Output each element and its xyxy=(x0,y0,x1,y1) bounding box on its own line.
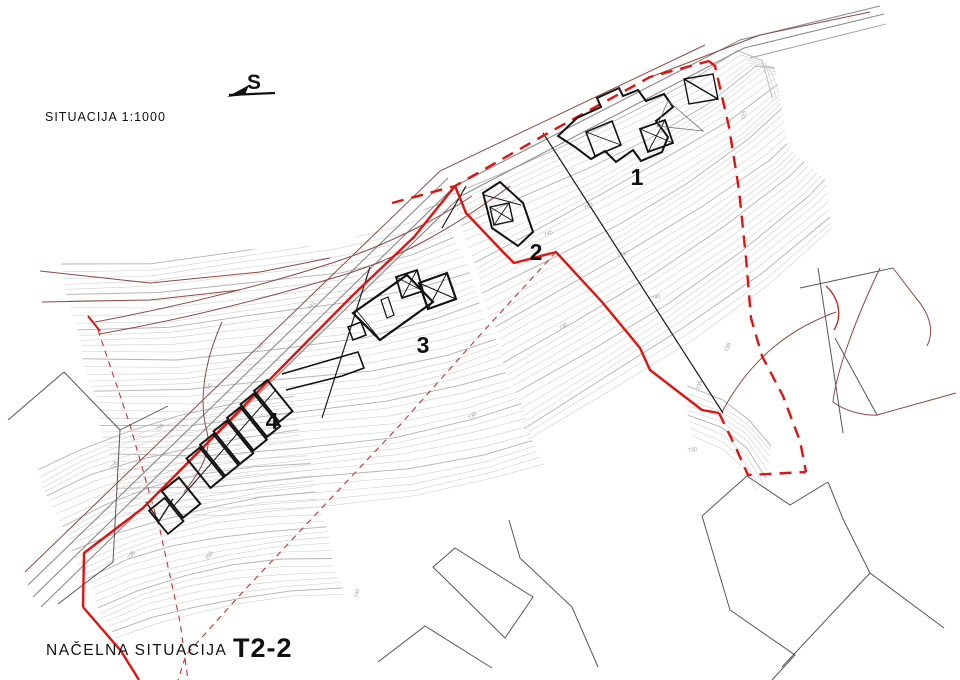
contour-elevation-label: 730 xyxy=(687,447,697,454)
plan-title: NAČELNA SITUACIJA xyxy=(46,642,227,659)
existing-road xyxy=(877,393,956,415)
contour-line xyxy=(98,559,332,609)
contour-elevation-label: 740 xyxy=(354,588,362,598)
contour-line xyxy=(73,257,463,316)
building-1 xyxy=(558,74,718,162)
contour-line xyxy=(505,116,884,369)
building-label-2: 2 xyxy=(530,239,543,265)
parcel-line xyxy=(747,476,828,505)
contour-line xyxy=(124,464,544,516)
contour-elevation-label: 735 xyxy=(467,411,478,422)
parcel-line xyxy=(782,482,870,667)
contour-lines-layer xyxy=(38,51,930,639)
building-3-diagonal xyxy=(357,311,378,337)
contour-elevation-label: 736 xyxy=(127,550,137,561)
road-edge xyxy=(41,14,884,607)
building-2 xyxy=(483,182,533,246)
scale-label: SITUACIJA 1:1000 xyxy=(45,110,166,124)
parcel-line xyxy=(433,548,533,638)
plan-title-code: T2-2 xyxy=(233,633,293,663)
contour-line xyxy=(690,428,760,489)
contour-elevation-label: 755 xyxy=(205,550,215,561)
boundary-layer xyxy=(83,61,806,680)
existing-road xyxy=(722,312,836,412)
buildings-layer xyxy=(132,74,718,534)
road-edge xyxy=(750,24,886,58)
contour-line xyxy=(65,232,451,289)
building-3-stair xyxy=(381,297,394,318)
parcel-line xyxy=(702,516,795,680)
contour-line xyxy=(94,543,330,594)
north-label: S xyxy=(247,71,261,94)
parcel-line xyxy=(58,372,120,604)
parcel-line xyxy=(378,626,492,668)
boundary-solid xyxy=(88,316,100,331)
parcel-line xyxy=(8,372,64,420)
contour-line xyxy=(116,594,345,638)
road-edge xyxy=(28,178,448,585)
contour-elevation-label: 730 xyxy=(558,322,569,332)
contour-line xyxy=(516,122,898,393)
contour-line xyxy=(521,129,906,409)
contour-line xyxy=(81,515,322,570)
contour-elevation-label: 735 xyxy=(724,342,733,353)
contour-line xyxy=(523,132,911,417)
contour-line xyxy=(500,105,864,339)
contour-elevation-label: 736 xyxy=(696,380,704,390)
contour-line xyxy=(99,364,504,419)
boundary-dashed xyxy=(719,413,806,475)
parcel-line xyxy=(818,268,843,433)
contour-line xyxy=(524,133,915,423)
north-arrow: S xyxy=(227,71,275,97)
contour-line xyxy=(496,101,857,327)
boundary-dashed-thin xyxy=(178,252,556,680)
contour-line xyxy=(65,226,450,284)
boundary-dashed xyxy=(709,61,806,472)
building-1-annex xyxy=(684,74,718,104)
parcel-line xyxy=(835,338,877,415)
building-3 xyxy=(348,270,456,340)
contour-line xyxy=(103,572,336,618)
existing-road xyxy=(833,268,880,415)
building-4-extension xyxy=(282,352,364,390)
building-label-1: 1 xyxy=(631,164,644,190)
existing-road xyxy=(893,268,931,346)
contour-line xyxy=(113,410,525,463)
contour-line xyxy=(106,578,338,622)
existing-road xyxy=(95,196,472,322)
building-2-outline xyxy=(483,182,533,246)
contour-elevation-label: 725 xyxy=(741,110,748,120)
contour-line xyxy=(100,566,333,614)
contour-line xyxy=(50,435,301,501)
site-plan: 7557257307357367407417457507557257307357… xyxy=(0,0,960,680)
parcel-line xyxy=(870,573,944,628)
parcel-line xyxy=(509,520,598,667)
contour-line xyxy=(100,373,506,426)
contour-line xyxy=(475,83,815,263)
building-label-4: 4 xyxy=(266,408,279,434)
contour-line xyxy=(501,108,869,347)
contour-elevation-label: 741 xyxy=(307,300,318,311)
cadastral-layer xyxy=(8,268,944,680)
building-label-3: 3 xyxy=(417,332,430,358)
parcel-line xyxy=(702,476,747,516)
contour-line xyxy=(103,387,511,437)
existing-road xyxy=(826,286,839,330)
